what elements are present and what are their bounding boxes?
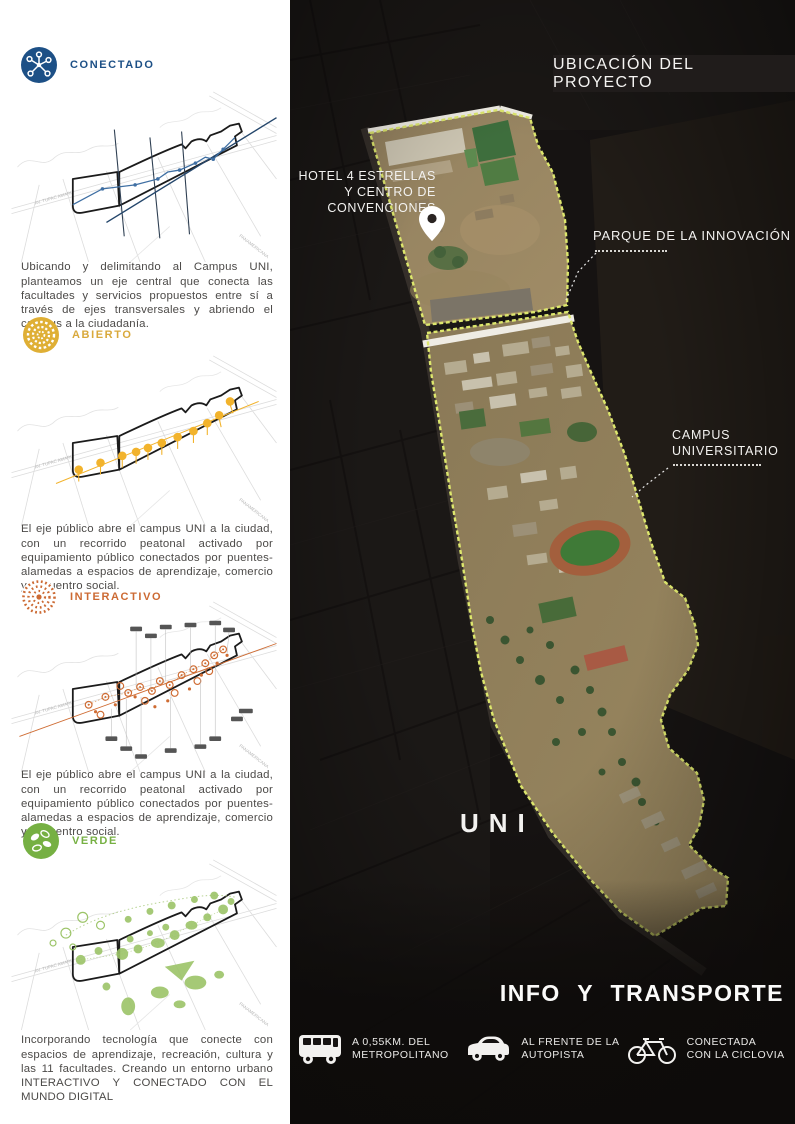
- paragraph-verde: Incorporando tecnología que conecte con …: [21, 1033, 273, 1104]
- campus-label: CAMPUS UNIVERSITARIO: [672, 427, 779, 459]
- central-route: [73, 137, 235, 204]
- section-header-conectado: CONECTADO: [20, 46, 154, 84]
- digital-axis: [19, 643, 276, 736]
- transport-row: A 0,55KM. DEL METROPOLITANO AL FRENTE DE…: [298, 1032, 791, 1066]
- verde-diagram: [6, 856, 284, 1032]
- transport-label: AL FRENTE DE LA AUTOPISTA: [521, 1036, 619, 1063]
- abierto-diagram: [6, 352, 284, 528]
- bus-icon: [298, 1032, 342, 1066]
- concepts-column: CONECTADO Ubicando y delimitando al Camp…: [0, 0, 290, 1124]
- transport-item-car: AL FRENTE DE LA AUTOPISTA: [465, 1035, 626, 1063]
- uni-label: UNI: [460, 808, 535, 839]
- hotel-label: HOTEL 4 ESTRELLAS Y CENTRO DE CONVENCION…: [294, 168, 436, 216]
- transport-item-bus: A 0,55KM. DEL METROPOLITANO: [298, 1032, 465, 1066]
- public-axis: [56, 401, 259, 483]
- network-icon: [20, 46, 58, 84]
- green-rings: [50, 912, 104, 950]
- car-icon: [465, 1035, 511, 1063]
- presentation-board: AV. TUPAC AMARU PANAMERICANA: [0, 0, 795, 1124]
- parque-dotted-underline: [595, 250, 667, 252]
- map-title-band: UBICACIÓN DEL PROYECTO: [553, 55, 795, 92]
- section-label: ABIERTO: [72, 329, 133, 341]
- node-dots: [88, 648, 229, 713]
- section-header-abierto: ABIERTO: [22, 316, 133, 354]
- sun-icon: [22, 316, 60, 354]
- transport-item-bicycle: CONECTADA CON LA CICLOVIA: [627, 1033, 791, 1065]
- interactivo-diagram: [6, 598, 284, 774]
- transport-label: CONECTADA CON LA CICLOVIA: [687, 1036, 785, 1063]
- map-title: UBICACIÓN DEL PROYECTO: [553, 56, 782, 92]
- bicycle-icon: [627, 1033, 677, 1065]
- conectado-diagram: [6, 88, 284, 264]
- green-areas: [76, 892, 235, 1016]
- campus-dotted-underline: [673, 464, 761, 466]
- metro-axis: [106, 118, 276, 223]
- section-label: CONECTADO: [70, 59, 154, 71]
- transport-label: A 0,55KM. DEL METROPOLITANO: [352, 1036, 449, 1063]
- location-map: UBICACIÓN DEL PROYECTO HOTEL 4 ESTRELLAS…: [290, 0, 795, 1124]
- map-pin-icon: [419, 206, 445, 242]
- section-label: VERDE: [72, 835, 118, 847]
- info-heading: INFO Y TRANSPORTE: [500, 980, 784, 1007]
- parque-label: PARQUE DE LA INNOVACIÓN: [593, 228, 791, 243]
- leaves-icon: [22, 822, 60, 860]
- section-header-verde: VERDE: [22, 822, 118, 860]
